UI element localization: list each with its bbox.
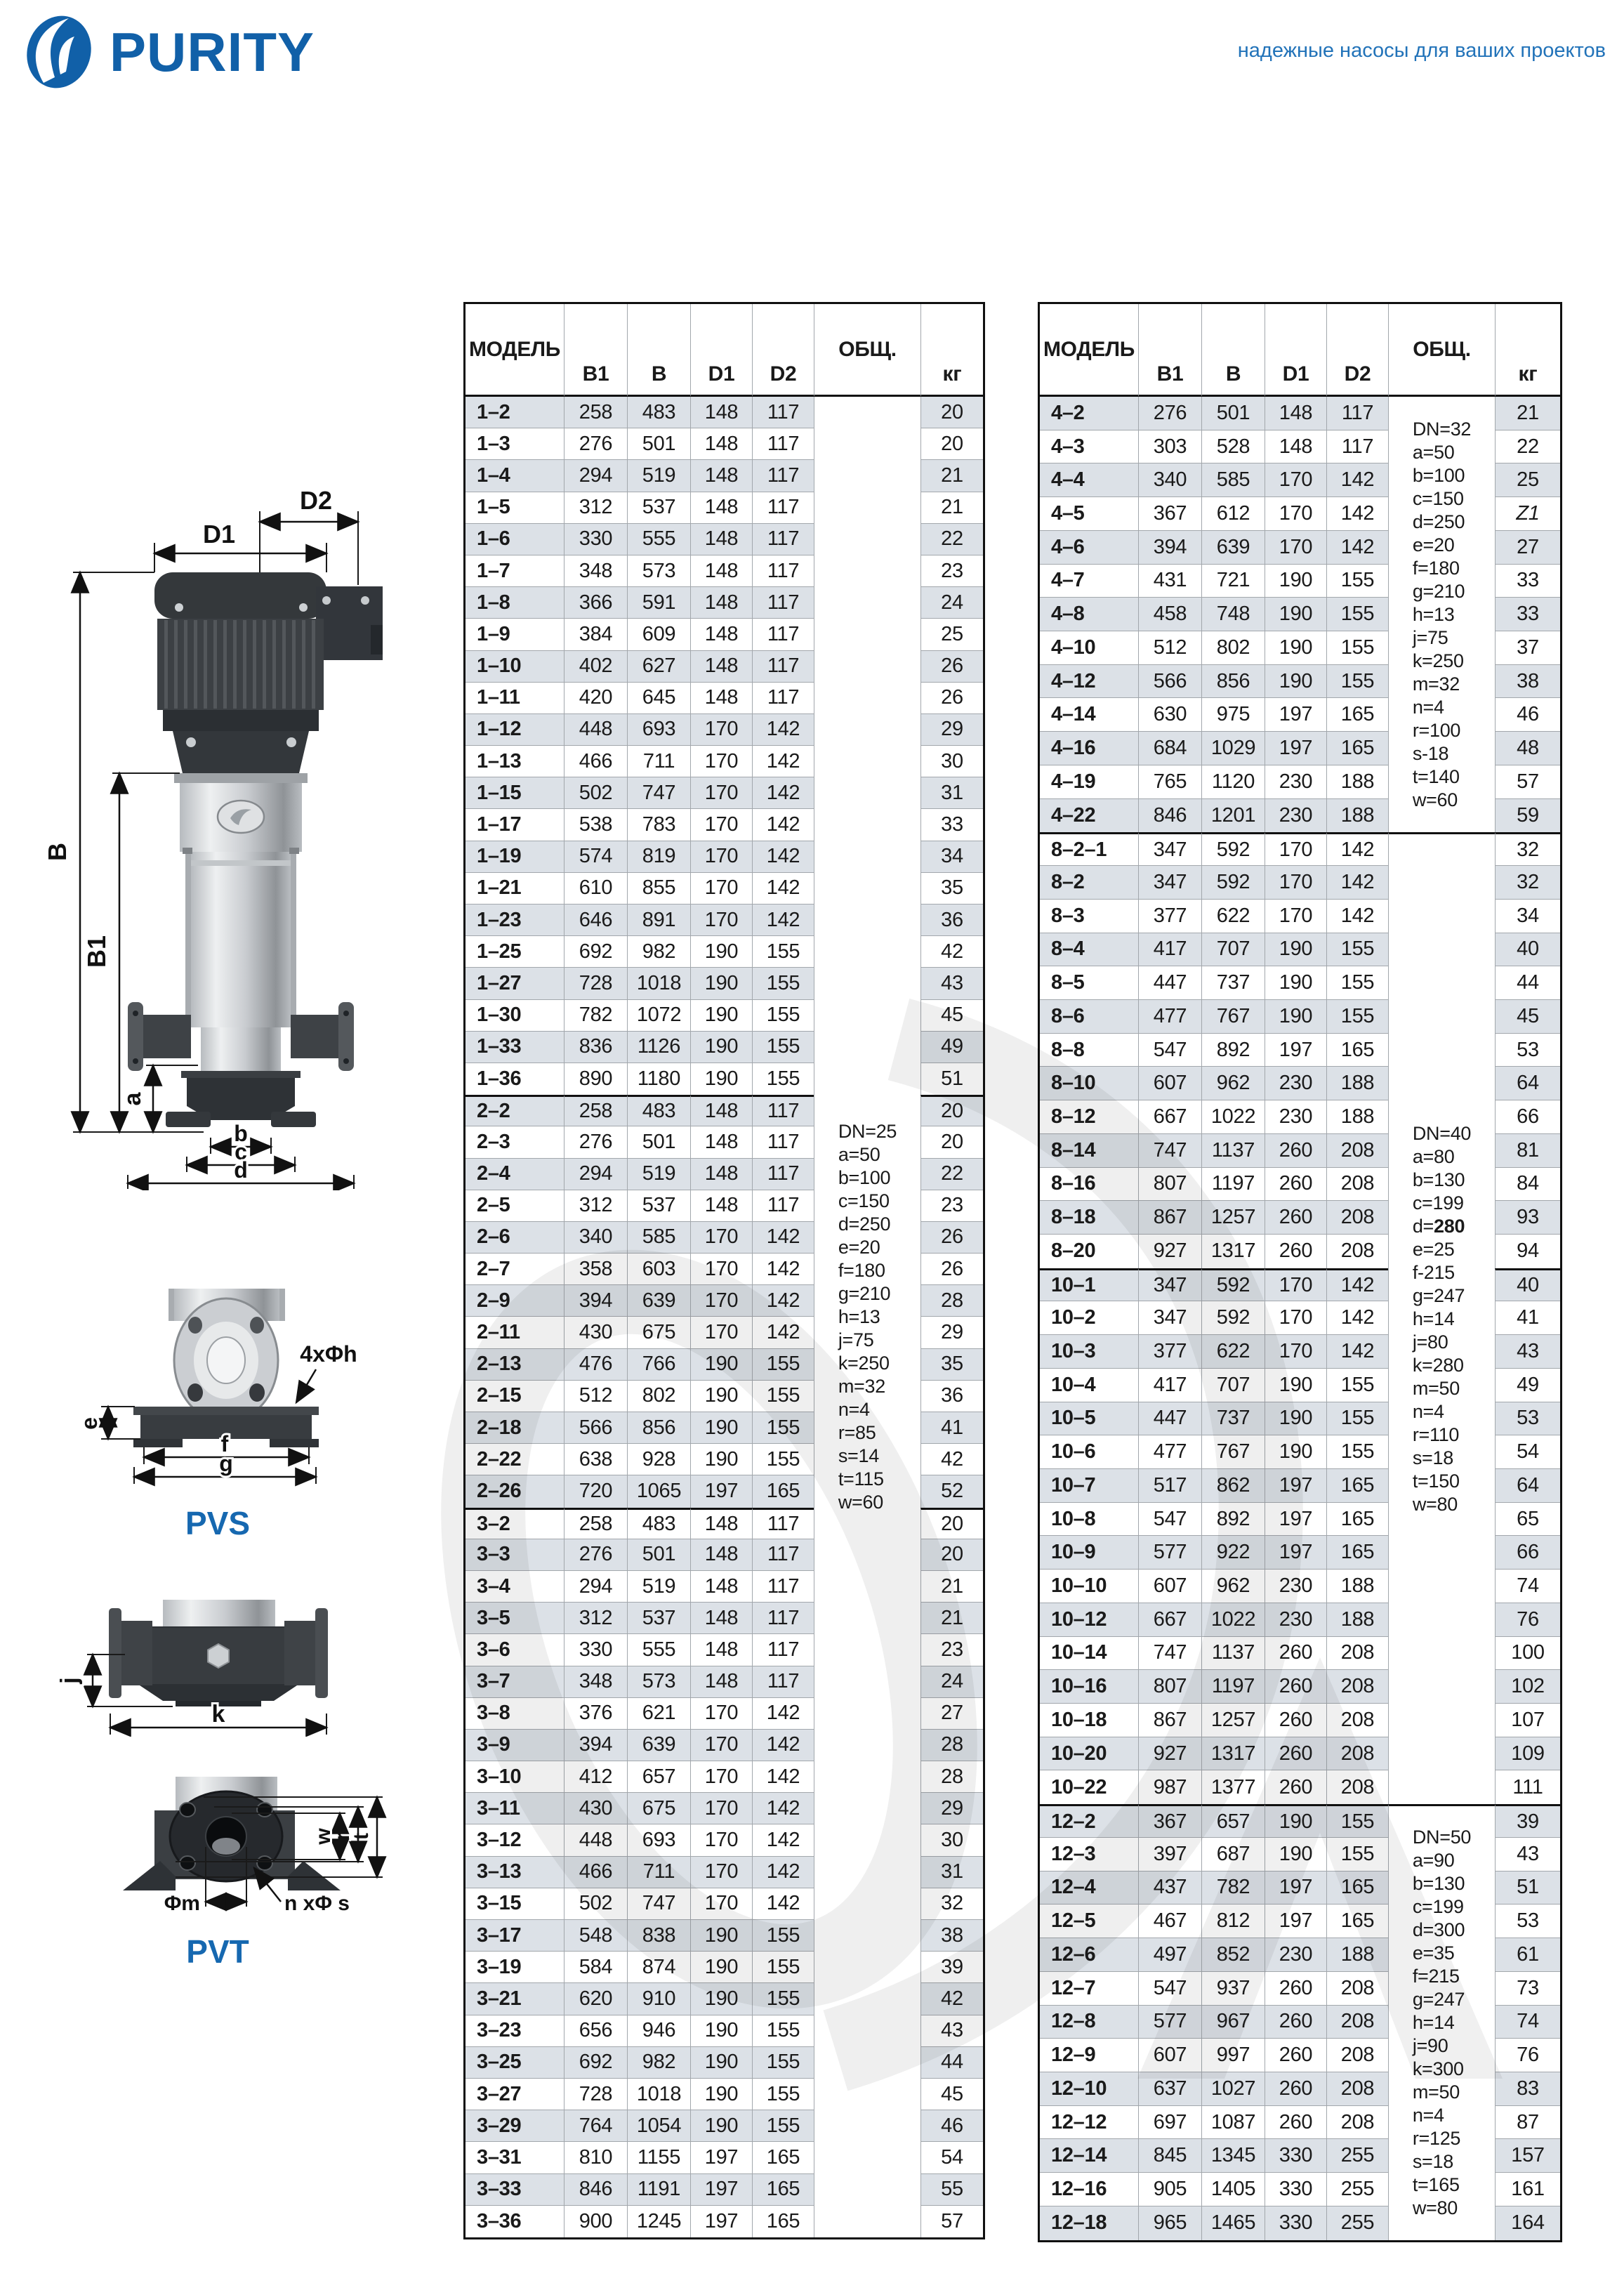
dim-cell: 197: [1265, 1536, 1326, 1570]
dimensions-table-right: МОДЕЛЬB1BD1D2ОБЩ.кг4–2276501148117214–33…: [1038, 302, 1562, 2242]
dim-cell: 856: [627, 1412, 690, 1444]
dim-cell: 197: [1265, 732, 1326, 765]
dim-cell: 555: [627, 1634, 690, 1666]
dim-cell: 117: [752, 397, 814, 428]
dim-cell: 528: [1201, 430, 1265, 464]
kg-cell: 29: [920, 1317, 983, 1348]
series-label-pvs: PVS: [35, 1504, 400, 1542]
spec-line: w=60: [1413, 789, 1471, 812]
spec-line: a=50: [1413, 441, 1471, 464]
kg-cell: 61: [1495, 1938, 1560, 1972]
catalog-page: PURITY надежные насосы для ваших проекто…: [0, 0, 1624, 2276]
dim-cell: 846: [564, 2174, 627, 2206]
dim-cell: 448: [564, 714, 627, 746]
model-cell: 8–16: [1040, 1168, 1138, 1202]
kg-cell: 42: [920, 936, 983, 968]
model-cell: 12–5: [1040, 1905, 1138, 1938]
kg-cell: 65: [1495, 1503, 1560, 1537]
kg-cell: 45: [920, 2079, 983, 2110]
spec-line: c=150: [1413, 487, 1471, 511]
dim-cell: 208: [1326, 1972, 1388, 2006]
dim-cell: 1022: [1201, 1100, 1265, 1134]
dim-cell: 417: [1138, 1369, 1201, 1402]
spec-line: n=4: [1413, 1400, 1471, 1423]
dim-cell: 585: [627, 1222, 690, 1254]
dim-cell: 117: [752, 1508, 814, 1539]
dim-cell: 170: [1265, 1268, 1326, 1302]
dim-cell: 591: [627, 587, 690, 619]
dim-cell: 190: [1265, 933, 1326, 967]
dim-cell: 208: [1326, 2039, 1388, 2072]
pump-dimension-diagram: D2 D1: [35, 467, 400, 1190]
dim-cell: 420: [564, 683, 627, 714]
dim-cell: 656: [564, 2015, 627, 2047]
dim-cell: 639: [627, 1285, 690, 1317]
model-cell: 3–29: [466, 2110, 564, 2142]
spec-line: DN=40: [1413, 1122, 1471, 1145]
dim-cell: 190: [690, 2110, 752, 2142]
dim-cell: 366: [564, 587, 627, 619]
model-cell: 3–10: [466, 1761, 564, 1793]
dim-label-d: d: [234, 1157, 248, 1183]
dim-cell: 148: [690, 683, 752, 714]
dim-cell: 155: [1326, 565, 1388, 598]
model-cell: 12–12: [1040, 2106, 1138, 2140]
dim-cell: 190: [1265, 1838, 1326, 1872]
kg-cell: 32: [1495, 866, 1560, 900]
dim-cell: 258: [564, 397, 627, 428]
dim-cell: 1027: [1201, 2072, 1265, 2106]
dim-cell: 190: [1265, 565, 1326, 598]
dim-cell: 170: [690, 1888, 752, 1920]
model-cell: 2–2: [466, 1095, 564, 1126]
kg-cell: 76: [1495, 2039, 1560, 2072]
dim-cell: 577: [1138, 1536, 1201, 1570]
spec-line: s-18: [1413, 742, 1471, 765]
dim-cell: 1137: [1201, 1134, 1265, 1168]
model-cell: 1–23: [466, 905, 564, 936]
dim-cell: 711: [627, 746, 690, 777]
dim-cell: 142: [1326, 497, 1388, 531]
dim-cell: 1072: [627, 1000, 690, 1032]
kg-cell: 66: [1495, 1536, 1560, 1570]
kg-cell: 20: [920, 428, 983, 460]
dim-cell: 142: [752, 873, 814, 905]
model-cell: 1–36: [466, 1063, 564, 1095]
dim-cell: 330: [1265, 2173, 1326, 2206]
dim-cell: 1317: [1201, 1737, 1265, 1771]
kg-cell: 64: [1495, 1469, 1560, 1503]
model-cell: 3–3: [466, 1539, 564, 1571]
dim-cell: 117: [752, 428, 814, 460]
kg-cell: 100: [1495, 1637, 1560, 1671]
dim-cell: 155: [752, 968, 814, 999]
model-cell: 3–8: [466, 1698, 564, 1730]
dim-cell: 312: [564, 1603, 627, 1634]
dim-cell: 358: [564, 1254, 627, 1285]
model-cell: 1–8: [466, 587, 564, 619]
dim-cell: 155: [1326, 598, 1388, 631]
dim-cell: 1018: [627, 968, 690, 999]
dim-cell: 946: [627, 2015, 690, 2047]
dim-cell: 260: [1265, 1235, 1326, 1268]
tagline: надежные насосы для ваших проектов: [1238, 39, 1606, 63]
dim-cell: 155: [752, 1983, 814, 2015]
pump-head: [173, 731, 309, 852]
dim-cell: 170: [690, 1254, 752, 1285]
dim-cell: 592: [1201, 1301, 1265, 1335]
dim-label-g: g: [219, 1451, 233, 1476]
dim-cell: 997: [1201, 2039, 1265, 2072]
dim-cell: 197: [1265, 698, 1326, 732]
dim-cell: 170: [690, 873, 752, 905]
model-cell: 1–13: [466, 746, 564, 777]
spec-line: c=199: [1413, 1895, 1471, 1919]
spec-line: j=75: [838, 1329, 897, 1352]
dim-cell: 720: [564, 1475, 627, 1507]
dim-cell: 537: [627, 1603, 690, 1634]
dim-cell: 607: [1138, 1570, 1201, 1603]
dim-cell: 782: [564, 1000, 627, 1032]
dim-cell: 155: [1326, 665, 1388, 699]
dim-cell: 142: [752, 841, 814, 873]
model-cell: 4–19: [1040, 765, 1138, 799]
dim-cell: 142: [752, 1857, 814, 1888]
dim-cell: 764: [564, 2110, 627, 2142]
spec-line: g=210: [838, 1282, 897, 1305]
dim-cell: 148: [690, 1603, 752, 1634]
dim-cell: 622: [1201, 1335, 1265, 1369]
dim-cell: 1087: [1201, 2106, 1265, 2140]
kg-cell: 30: [920, 1824, 983, 1856]
header-obsh: ОБЩ.: [814, 304, 920, 397]
kg-cell: 22: [920, 1159, 983, 1190]
model-cell: 3–36: [466, 2206, 564, 2237]
model-cell: 4–2: [1040, 397, 1138, 430]
model-cell: 10–14: [1040, 1637, 1138, 1671]
dim-cell: 276: [1138, 397, 1201, 430]
kg-cell: 21: [920, 460, 983, 492]
kg-cell: 27: [920, 1698, 983, 1730]
model-cell: 4–14: [1040, 698, 1138, 732]
dim-cell: 165: [752, 2142, 814, 2173]
dim-cell: 170: [690, 777, 752, 809]
spec-line: d=250: [838, 1213, 897, 1236]
dim-cell: 1317: [1201, 1235, 1265, 1268]
dim-cell: 1126: [627, 1032, 690, 1063]
dim-cell: 188: [1326, 799, 1388, 833]
dim-cell: 142: [752, 1793, 814, 1824]
dim-cell: 165: [1326, 1469, 1388, 1503]
dim-cell: 255: [1326, 2139, 1388, 2173]
dim-cell: 1257: [1201, 1704, 1265, 1737]
dim-cell: 117: [752, 587, 814, 619]
spec-line: m=50: [1413, 1377, 1471, 1400]
model-cell: 3–17: [466, 1920, 564, 1952]
dim-cell: 197: [1265, 1503, 1326, 1537]
kg-cell: 38: [920, 1920, 983, 1952]
dim-cell: 766: [627, 1349, 690, 1381]
dim-cell: 645: [627, 683, 690, 714]
model-cell: 2–4: [466, 1159, 564, 1190]
dim-cell: 155: [1326, 966, 1388, 1000]
dim-cell: 447: [1138, 966, 1201, 1000]
dim-cell: 573: [627, 1666, 690, 1698]
dim-cell: 1257: [1201, 1201, 1265, 1235]
dim-cell: 987: [1138, 1770, 1201, 1804]
dim-cell: 117: [752, 1539, 814, 1571]
dim-cell: 190: [690, 1920, 752, 1952]
dim-cell: 477: [1138, 1000, 1201, 1034]
dim-cell: 148: [690, 619, 752, 650]
kg-cell: 54: [920, 2142, 983, 2173]
dim-cell: 728: [564, 968, 627, 999]
kg-cell: 54: [1495, 1435, 1560, 1469]
dim-cell: 502: [564, 1888, 627, 1920]
header-obsh: ОБЩ.: [1388, 304, 1495, 397]
dim-cell: 347: [1138, 832, 1201, 866]
model-cell: 12–9: [1040, 2039, 1138, 2072]
dim-cell: 512: [564, 1381, 627, 1412]
dim-cell: 603: [627, 1254, 690, 1285]
dim-cell: 190: [690, 1349, 752, 1381]
dim-cell: 117: [752, 1095, 814, 1126]
dim-cell: 836: [564, 1032, 627, 1063]
dim-cell: 276: [564, 1126, 627, 1158]
dim-cell: 117: [752, 524, 814, 555]
model-cell: 1–11: [466, 683, 564, 714]
dim-cell: 142: [1326, 531, 1388, 565]
dim-cell: 155: [752, 1412, 814, 1444]
dim-cell: 190: [1265, 665, 1326, 699]
model-cell: 8–3: [1040, 900, 1138, 933]
dim-cell: 347: [1138, 1268, 1201, 1302]
dim-cell: 867: [1138, 1201, 1201, 1235]
dim-cell: 165: [1326, 732, 1388, 765]
model-cell: 2–13: [466, 1349, 564, 1381]
model-cell: 12–7: [1040, 1972, 1138, 2006]
dim-cell: 922: [1201, 1536, 1265, 1570]
dim-cell: 810: [564, 2142, 627, 2173]
dim-cell: 155: [1326, 1435, 1388, 1469]
dim-cell: 117: [752, 1666, 814, 1698]
dim-cell: 148: [690, 1539, 752, 1571]
dim-cell: 477: [1138, 1435, 1201, 1469]
dim-cell: 1054: [627, 2110, 690, 2142]
kg-cell: 55: [920, 2174, 983, 2206]
header-d2: D2: [752, 304, 814, 397]
dim-cell: 197: [1265, 1469, 1326, 1503]
kg-cell: 157: [1495, 2139, 1560, 2173]
kg-cell: 59: [1495, 799, 1560, 833]
dim-cell: 148: [690, 651, 752, 683]
kg-cell: 31: [920, 1857, 983, 1888]
dim-cell: 155: [752, 1920, 814, 1952]
dim-cell: 637: [1138, 2072, 1201, 2106]
dim-cell: 117: [752, 1159, 814, 1190]
dim-cell: 667: [1138, 1100, 1201, 1134]
header-b1: B1: [564, 304, 627, 397]
model-cell: 1–33: [466, 1032, 564, 1063]
dim-cell: 592: [1201, 866, 1265, 900]
kg-cell: 26: [920, 1254, 983, 1285]
dim-cell: 276: [564, 1539, 627, 1571]
dim-cell: 190: [690, 968, 752, 999]
dim-cell: 148: [690, 1508, 752, 1539]
dim-cell: 148: [690, 524, 752, 555]
kg-cell: 42: [920, 1983, 983, 2015]
dim-cell: 142: [752, 1824, 814, 1856]
dim-cell: 693: [627, 714, 690, 746]
spec-block: DN=40a=80b=130c=199d=280e=25f-215g=247h=…: [1388, 832, 1495, 1804]
dim-cell: 142: [752, 1761, 814, 1793]
dim-cell: 258: [564, 1095, 627, 1126]
model-cell: 8–5: [1040, 966, 1138, 1000]
dim-cell: 142: [752, 1317, 814, 1348]
kg-cell: 35: [920, 1349, 983, 1381]
dim-cell: 155: [752, 1000, 814, 1032]
model-cell: 3–7: [466, 1666, 564, 1698]
model-cell: 10–2: [1040, 1301, 1138, 1335]
dim-cell: 1201: [1201, 799, 1265, 833]
dim-cell: 537: [627, 492, 690, 524]
kg-cell: 33: [1495, 598, 1560, 631]
dim-cell: 190: [690, 1444, 752, 1475]
dim-cell: 483: [627, 1095, 690, 1126]
model-cell: 3–13: [466, 1857, 564, 1888]
kg-cell: 45: [920, 1000, 983, 1032]
dim-cell: 230: [1265, 765, 1326, 799]
model-cell: 10–7: [1040, 1469, 1138, 1503]
dim-cell: 142: [752, 777, 814, 809]
dim-cell: 394: [1138, 531, 1201, 565]
dim-cell: 142: [752, 1698, 814, 1730]
spec-line: h=14: [1413, 1308, 1471, 1331]
dim-label-k: k: [212, 1701, 225, 1728]
dim-cell: 1155: [627, 2142, 690, 2173]
dim-cell: 148: [690, 1159, 752, 1190]
brand-logo: PURITY: [20, 13, 315, 91]
kg-cell: 24: [920, 1666, 983, 1698]
dim-cell: 148: [690, 492, 752, 524]
dim-cell: 208: [1326, 1637, 1388, 1671]
spec-line: j=75: [1413, 626, 1471, 650]
kg-cell: 33: [1495, 565, 1560, 598]
model-cell: 10–3: [1040, 1335, 1138, 1369]
series-label-pvt: PVT: [35, 1933, 400, 1971]
dim-cell: 547: [1138, 1503, 1201, 1537]
dim-cell: 548: [564, 1920, 627, 1952]
pump-body: [183, 848, 299, 1027]
model-cell: 1–25: [466, 936, 564, 968]
kg-cell: 111: [1495, 1770, 1560, 1804]
spec-line: e=20: [1413, 534, 1471, 557]
header-model: МОДЕЛЬ: [1040, 304, 1138, 397]
pvt-face-diagram: t r w Φm n xΦ s: [70, 1777, 407, 1924]
kg-cell: 36: [920, 905, 983, 936]
dim-cell: 190: [1265, 1402, 1326, 1436]
kg-cell: 109: [1495, 1737, 1560, 1771]
dimensions-table-left: МОДЕЛЬB1BD1D2ОБЩ.кг1–2258483148117201–32…: [463, 302, 985, 2239]
dim-cell: 208: [1326, 1168, 1388, 1202]
dim-cell: 260: [1265, 2106, 1326, 2140]
pump-base: [166, 1071, 316, 1127]
spec-line: k=280: [1413, 1354, 1471, 1377]
dim-cell: 117: [752, 1571, 814, 1603]
dim-cell: 838: [627, 1920, 690, 1952]
dim-cell: 142: [1326, 1301, 1388, 1335]
dim-cell: 684: [1138, 732, 1201, 765]
spec-block: DN=25a=50b=100c=150d=250e=20f=180g=210h=…: [814, 397, 920, 2237]
spec-line: m=50: [1413, 2081, 1471, 2104]
model-cell: 3–23: [466, 2015, 564, 2047]
dim-cell: 312: [564, 492, 627, 524]
dim-cell: 892: [1201, 1503, 1265, 1537]
spec-line: j=80: [1413, 1331, 1471, 1354]
dim-cell: 170: [690, 1317, 752, 1348]
kg-cell: 46: [1495, 698, 1560, 732]
dim-cell: 1197: [1201, 1670, 1265, 1704]
kg-cell: 33: [920, 809, 983, 841]
dim-cell: 711: [627, 1857, 690, 1888]
model-cell: 2–26: [466, 1475, 564, 1507]
spec-line: s=18: [1413, 2150, 1471, 2173]
model-cell: 1–27: [466, 968, 564, 999]
model-cell: 2–15: [466, 1381, 564, 1412]
dim-label-j: j: [56, 1677, 83, 1684]
model-cell: 4–16: [1040, 732, 1138, 765]
kg-cell: 20: [920, 1126, 983, 1158]
dim-cell: 155: [752, 2015, 814, 2047]
spec-line: t=150: [1413, 1470, 1471, 1493]
dim-cell: 148: [690, 428, 752, 460]
dim-cell: 584: [564, 1952, 627, 1983]
model-cell: 8–6: [1040, 1000, 1138, 1034]
dim-cell: 148: [1265, 430, 1326, 464]
model-cell: 3–27: [466, 2079, 564, 2110]
dim-cell: 165: [1326, 1905, 1388, 1938]
model-cell: 12–16: [1040, 2173, 1138, 2206]
dim-cell: 639: [1201, 531, 1265, 565]
dim-cell: 592: [1201, 1268, 1265, 1302]
spec-line: f-215: [1413, 1261, 1471, 1284]
model-cell: 1–7: [466, 555, 564, 587]
dim-cell: 377: [1138, 1335, 1201, 1369]
dim-cell: 155: [1326, 1838, 1388, 1872]
dim-cell: 117: [752, 460, 814, 492]
kg-cell: 25: [1495, 463, 1560, 497]
dim-cell: 190: [1265, 966, 1326, 1000]
dim-cell: 294: [564, 460, 627, 492]
dim-cell: 155: [752, 2079, 814, 2110]
dim-cell: 622: [1201, 900, 1265, 933]
dim-cell: 862: [1201, 1469, 1265, 1503]
dim-cell: 547: [1138, 1972, 1201, 2006]
dim-cell: 260: [1265, 1168, 1326, 1202]
model-cell: 4–8: [1040, 598, 1138, 631]
dim-cell: 208: [1326, 1770, 1388, 1804]
dim-cell: 348: [564, 1666, 627, 1698]
header-kg: кг: [920, 304, 983, 397]
model-cell: 8–18: [1040, 1201, 1138, 1235]
dim-cell: 693: [627, 1824, 690, 1856]
dim-cell: 1022: [1201, 1603, 1265, 1637]
purity-swirl-icon: [20, 13, 103, 91]
model-cell: 4–12: [1040, 665, 1138, 699]
dim-cell: 1180: [627, 1063, 690, 1095]
dim-cell: 170: [690, 1730, 752, 1761]
header-b1: B1: [1138, 304, 1201, 397]
